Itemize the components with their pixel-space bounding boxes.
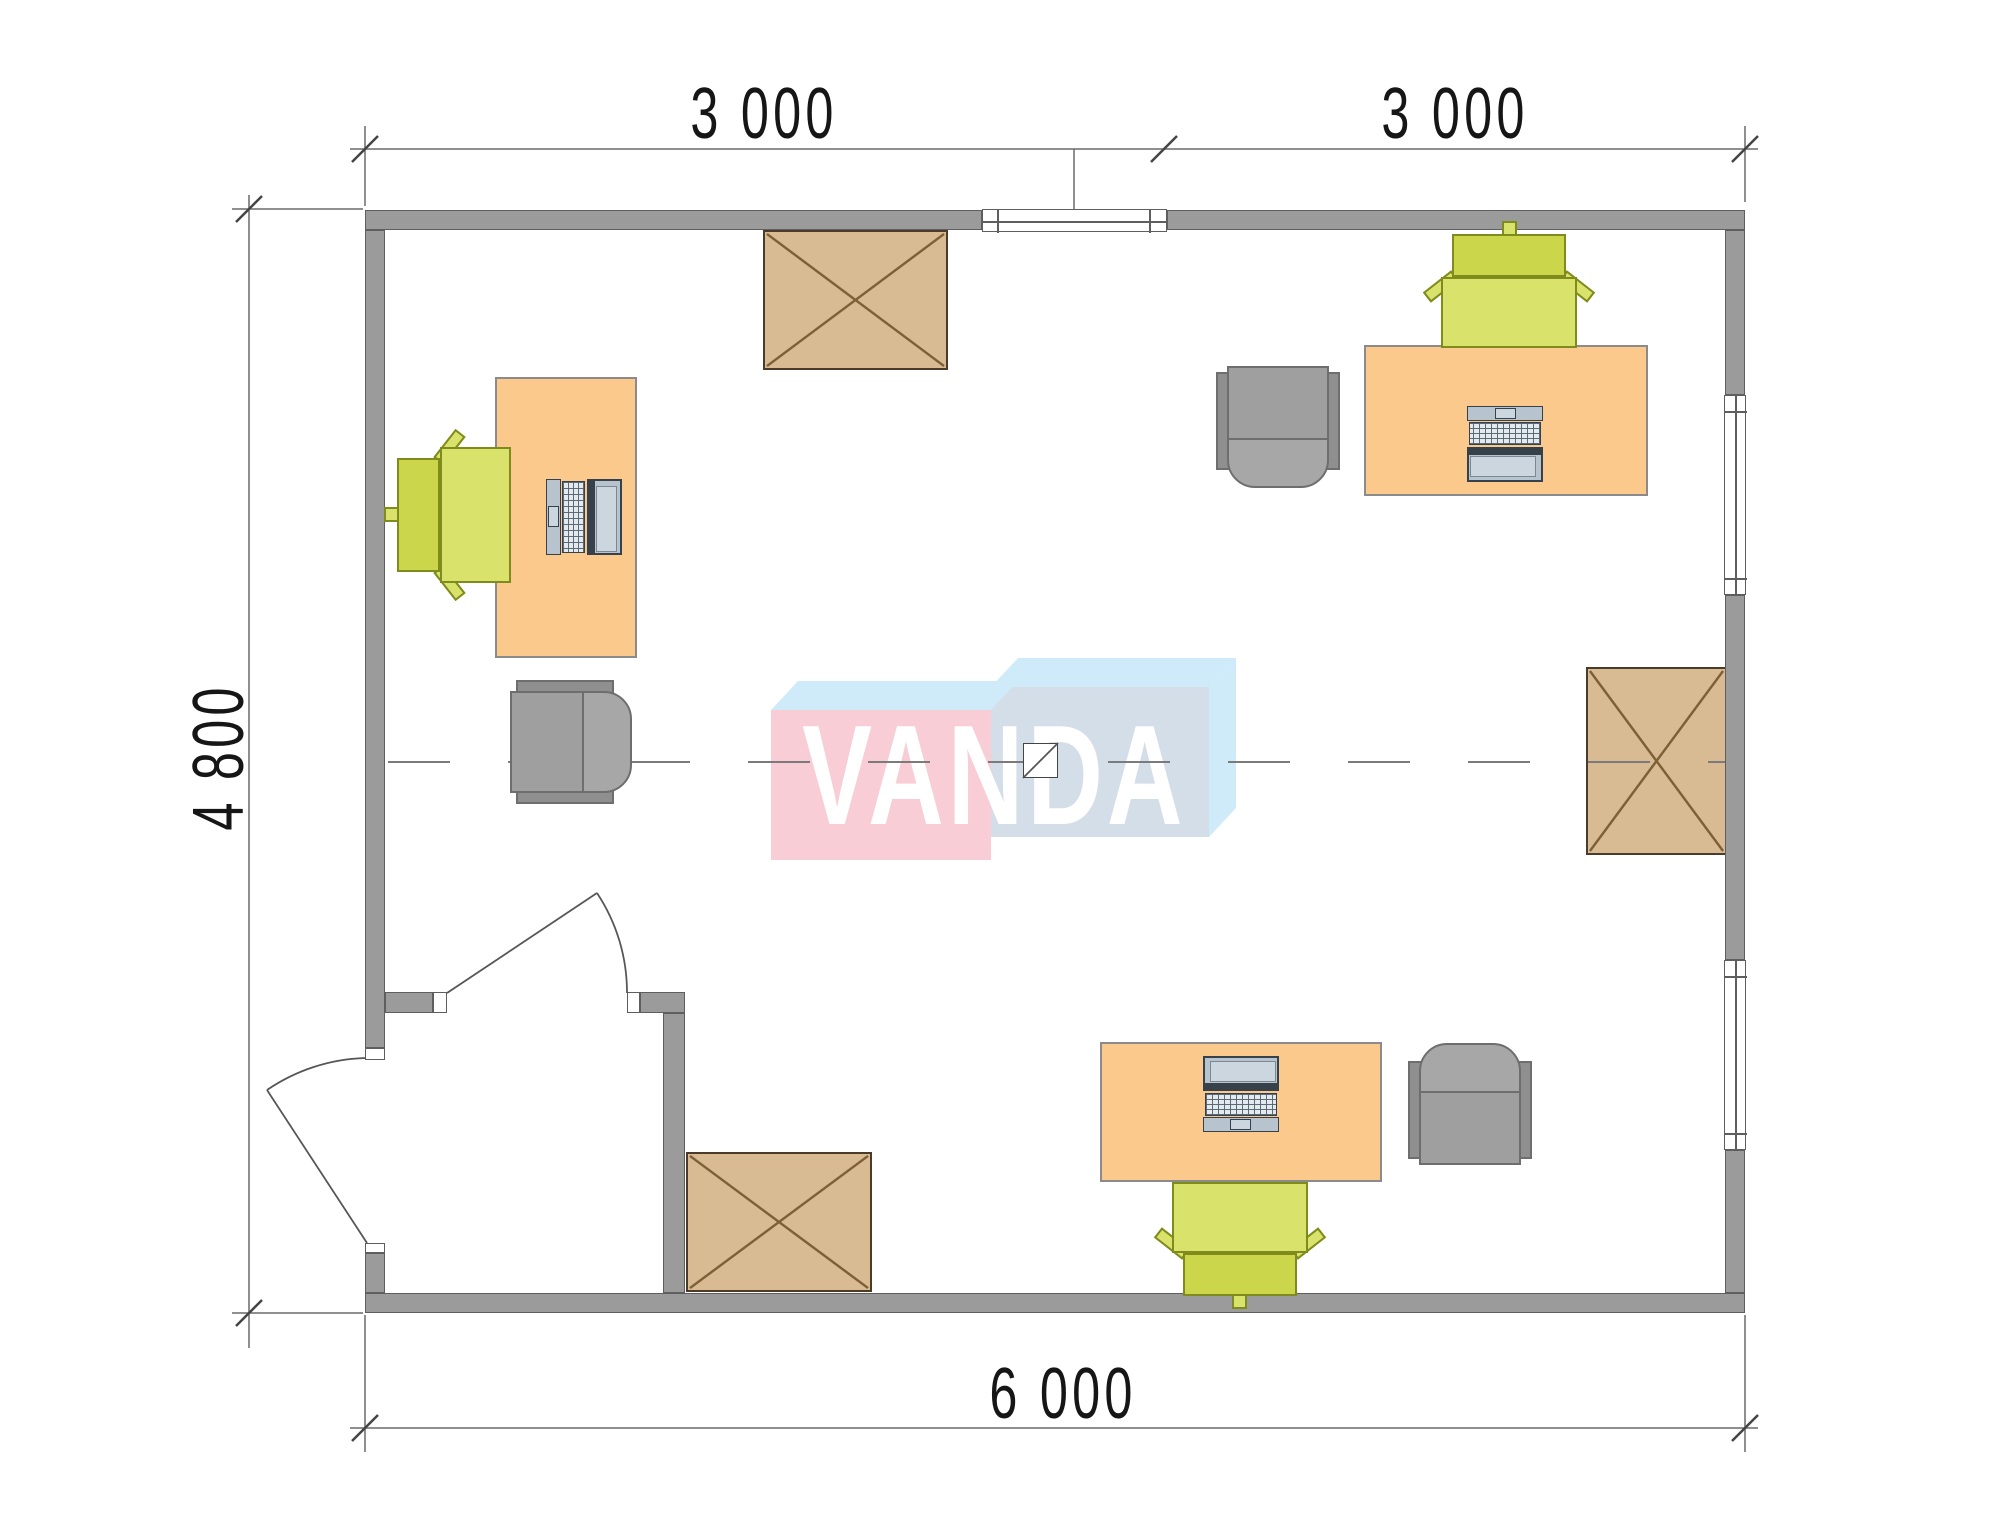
dimension-label-bottom: 6 000 xyxy=(923,1358,1203,1430)
exterior-door-swing xyxy=(267,1058,365,1090)
dimension-label-left-text: 4 800 xyxy=(183,617,255,897)
exterior-door-leaf xyxy=(267,1090,367,1243)
dimension-label-top-left: 3 000 xyxy=(624,78,904,150)
junction-box-diagonal xyxy=(1023,743,1058,778)
interior-door-swing xyxy=(597,893,627,993)
floor-plan-canvas: VANDA xyxy=(0,0,2000,1520)
linework-overlay xyxy=(0,0,2000,1520)
interior-door-leaf xyxy=(447,893,597,993)
dimension-label-top-right: 3 000 xyxy=(1315,78,1595,150)
dimension-label-left: 4 800 xyxy=(183,557,243,957)
